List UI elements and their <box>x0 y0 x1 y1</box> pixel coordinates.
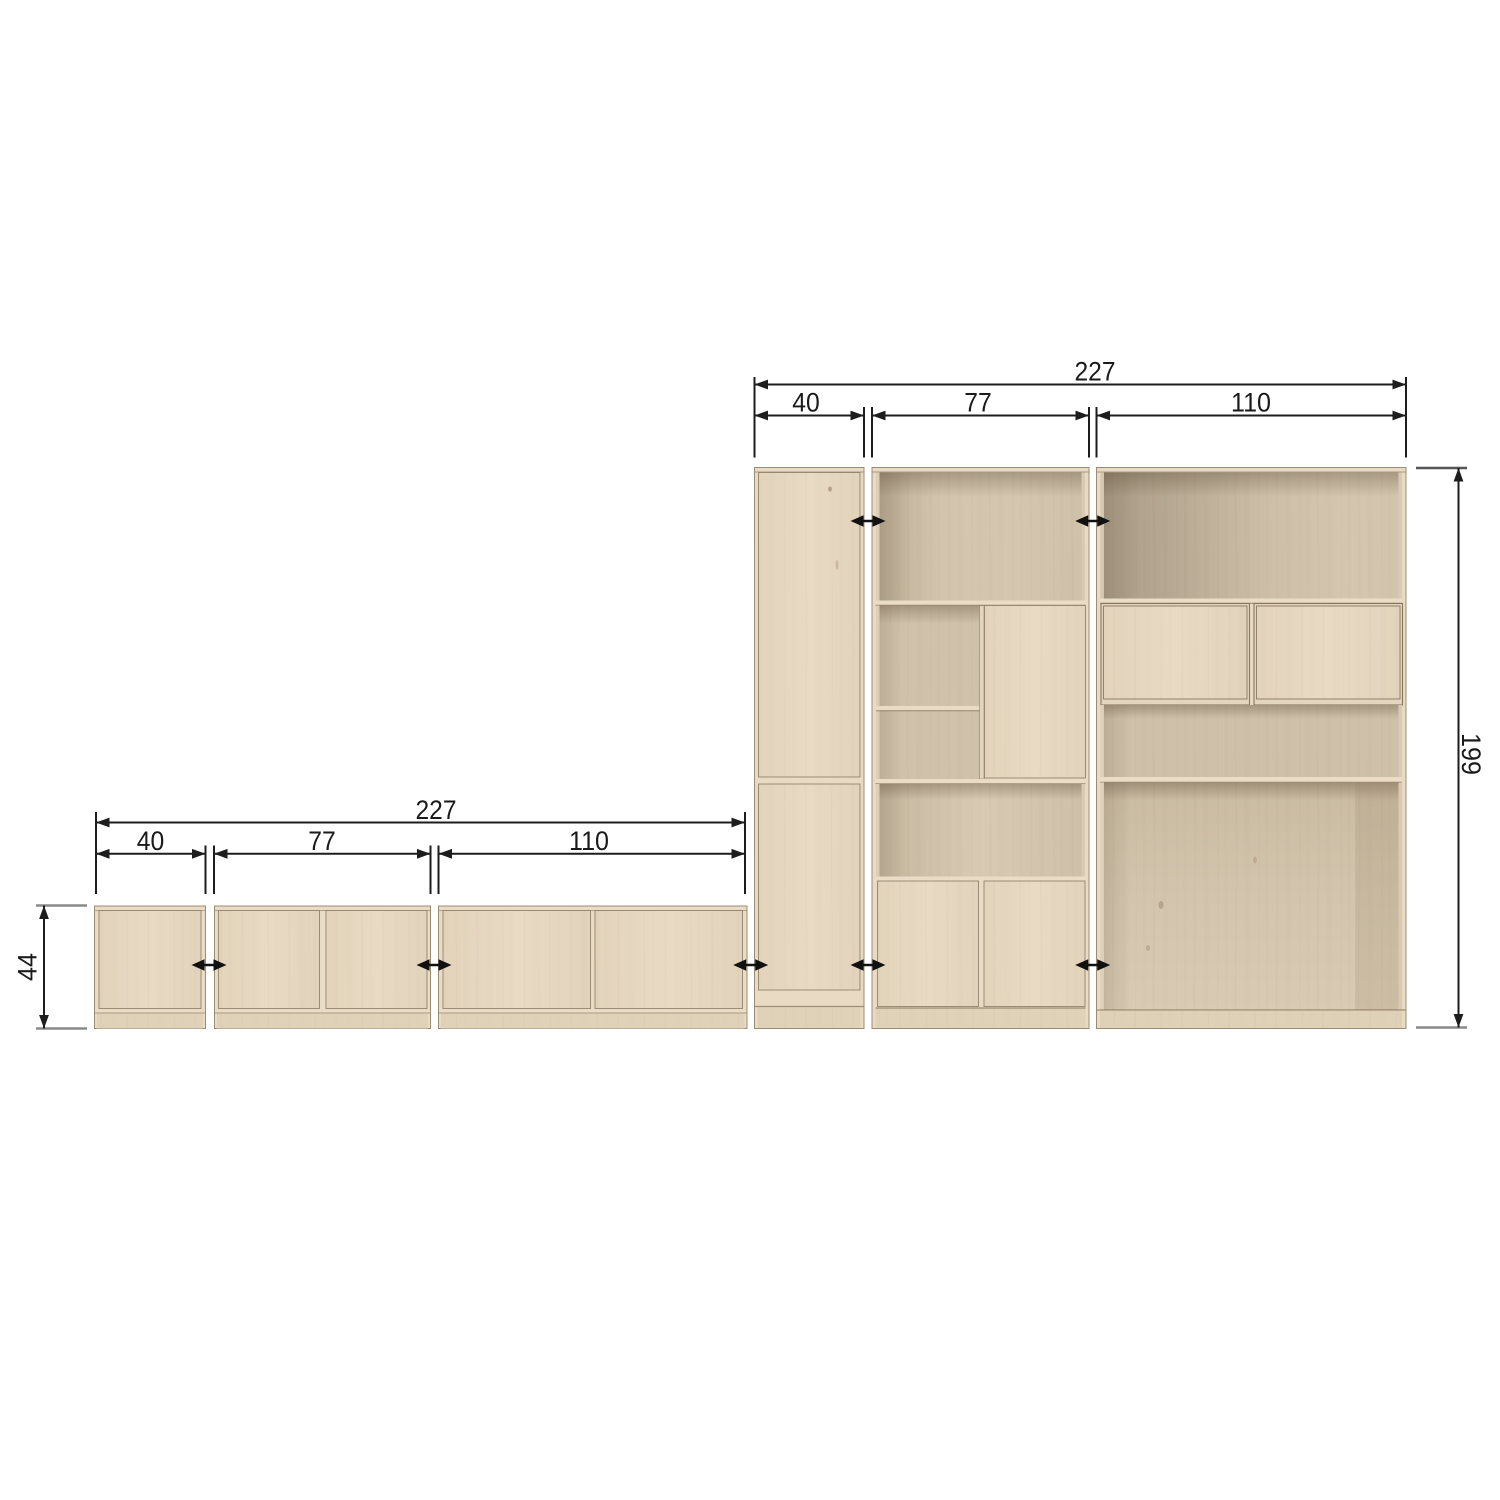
svg-text:44: 44 <box>13 953 43 981</box>
svg-text:77: 77 <box>964 388 992 418</box>
svg-text:77: 77 <box>308 826 336 856</box>
svg-text:110: 110 <box>569 826 609 856</box>
svg-text:227: 227 <box>416 795 457 825</box>
svg-text:199: 199 <box>1456 733 1486 775</box>
svg-text:40: 40 <box>137 826 165 856</box>
svg-text:227: 227 <box>1075 357 1116 387</box>
svg-text:40: 40 <box>792 388 820 418</box>
svg-text:110: 110 <box>1231 388 1271 418</box>
